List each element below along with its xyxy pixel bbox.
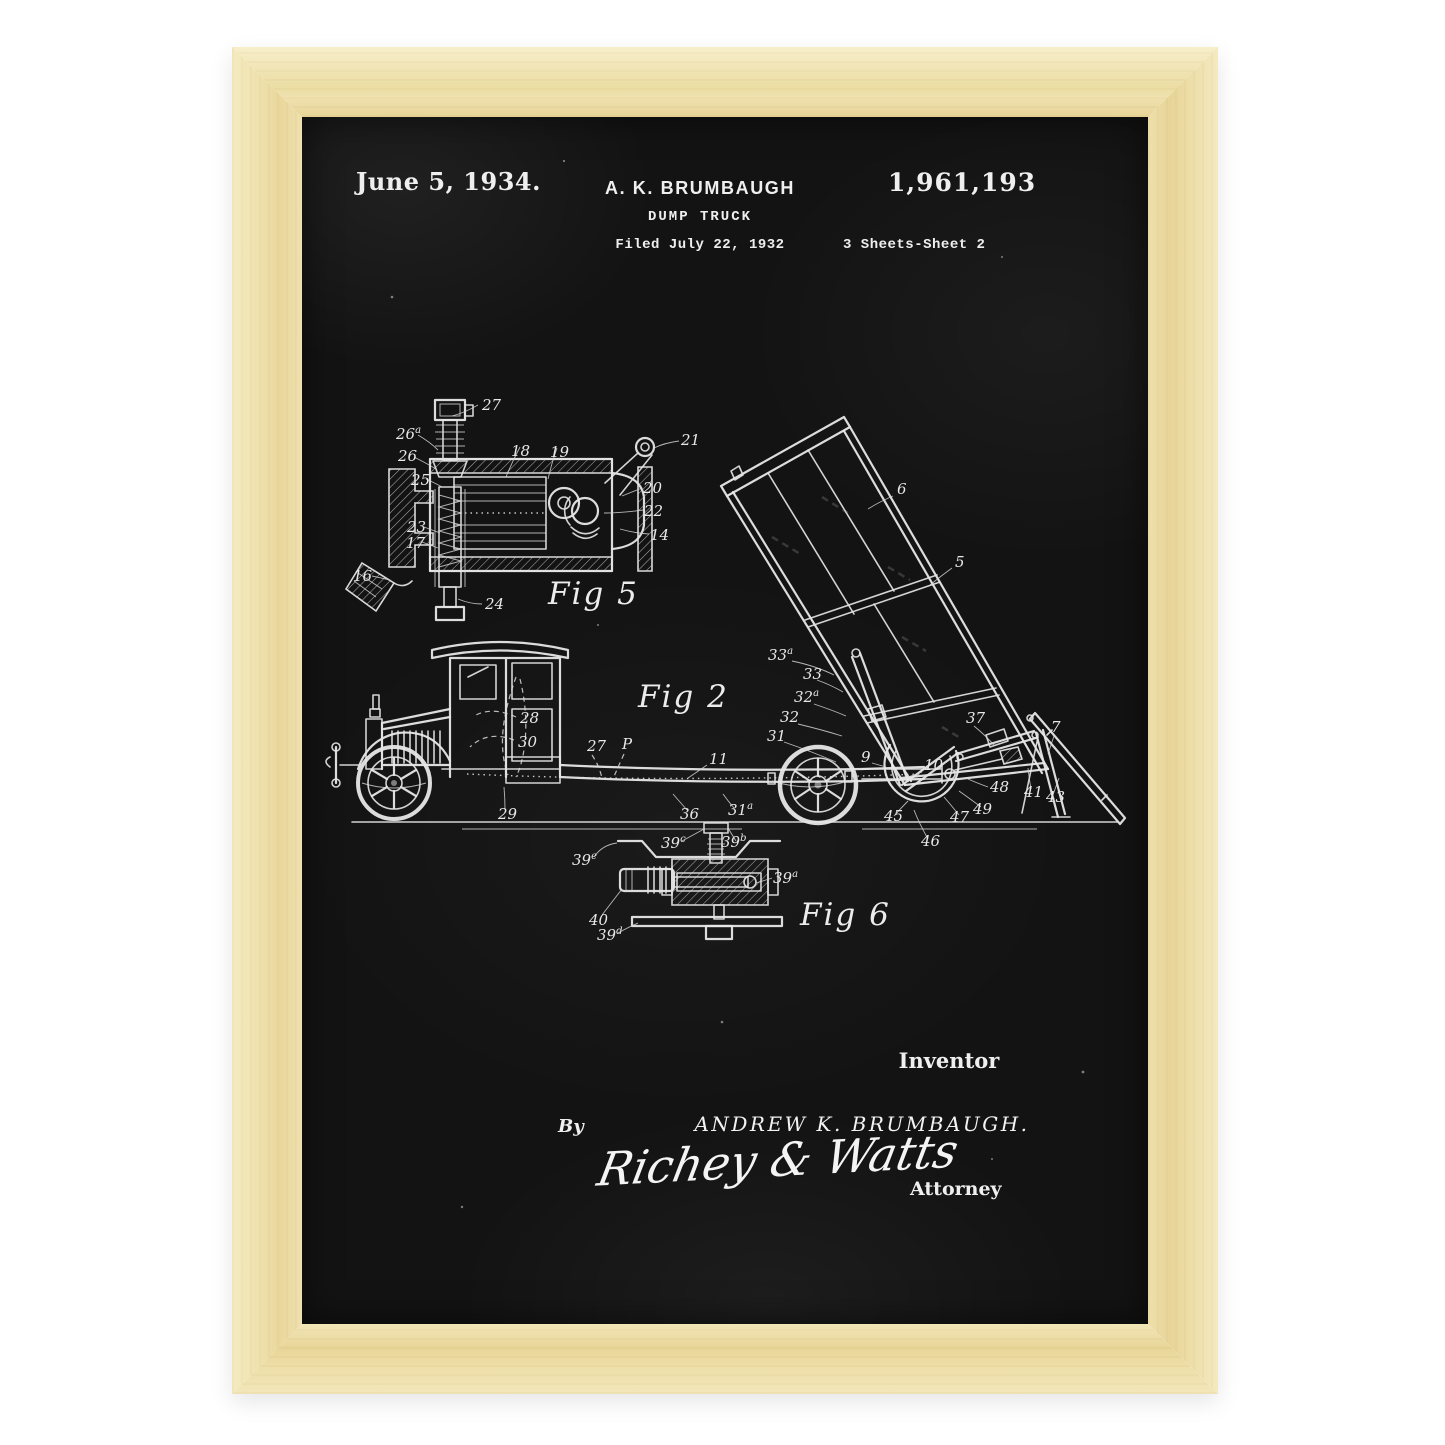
reference-numeral: 46: [920, 832, 941, 850]
inventor-label: Inventor: [894, 1048, 1004, 1073]
reference-numeral: 24: [484, 595, 504, 613]
reference-numeral: 48: [989, 778, 1009, 796]
reference-numeral: 32: [780, 708, 799, 726]
reference-numeral: 19: [550, 443, 570, 461]
reference-numeral: 10: [924, 756, 944, 774]
reference-numeral: 39e: [572, 851, 597, 869]
reference-numeral: 29: [497, 805, 518, 823]
reference-numeral: 17: [406, 534, 426, 552]
reference-numeral: 41: [1023, 783, 1043, 801]
reference-numeral: 30: [518, 733, 538, 751]
fig5-label: Fig 5: [547, 576, 639, 612]
reference-numeral: 5: [955, 553, 965, 571]
by-label: By: [558, 1116, 584, 1137]
reference-numeral: 49: [972, 800, 993, 818]
fig2-label: Fig 2: [637, 679, 729, 715]
reference-numeral: 20: [642, 479, 663, 497]
reference-numeral: 39d: [597, 926, 623, 944]
reference-numeral: 9: [861, 748, 871, 766]
reference-numeral: P: [621, 735, 633, 753]
reference-numeral: 31a: [728, 801, 753, 819]
reference-numeral: 27: [481, 396, 502, 414]
reference-numeral: 14: [650, 526, 669, 544]
frame-bottom: [232, 1324, 1218, 1394]
reference-numeral: 43: [1045, 788, 1065, 806]
reference-numeral: 32a: [794, 688, 819, 706]
reference-numeral: 22: [643, 502, 663, 520]
wood-frame: June 5, 1934. A. K. BRUMBAUGH 1,961,193 …: [232, 47, 1218, 1394]
reference-numeral: 45: [883, 807, 903, 825]
figure-5-valve-detail: Fig 52726a262523171624181921202214: [346, 396, 700, 620]
reference-numeral: 33: [803, 665, 822, 683]
reference-numeral: 28: [519, 709, 539, 727]
reference-numeral: 47: [949, 808, 970, 826]
reference-numeral: 7: [1051, 718, 1061, 736]
figure-6-bracket-detail: Fig 639e39c39b39a4039d: [572, 823, 891, 944]
frame-right: [1148, 47, 1218, 1394]
reference-numeral: 33a: [768, 646, 793, 664]
reference-numeral: 26: [397, 447, 418, 465]
fig6-label: Fig 6: [799, 897, 891, 933]
reference-numeral: 16: [353, 567, 373, 585]
framed-patent-poster: June 5, 1934. A. K. BRUMBAUGH 1,961,193 …: [0, 0, 1445, 1445]
reference-numeral: 11: [709, 750, 728, 768]
attorney-label: Attorney: [910, 1178, 1002, 1200]
frame-left: [232, 47, 302, 1394]
patent-poster: June 5, 1934. A. K. BRUMBAUGH 1,961,193 …: [302, 117, 1148, 1324]
frame-top: [232, 47, 1218, 117]
reference-numeral: 36: [680, 805, 700, 823]
figure-2-truck-side-view: Fig 2283027P11293631a33a3332a32316591037…: [326, 417, 1125, 850]
reference-numeral: 27: [586, 737, 607, 755]
reference-numeral: 39a: [773, 869, 798, 887]
reference-numeral: 31: [767, 727, 786, 745]
reference-numeral: 18: [511, 442, 530, 460]
reference-numeral: 6: [897, 480, 907, 498]
reference-numeral: 37: [966, 709, 986, 727]
reference-numeral: 26a: [395, 425, 421, 443]
reference-numeral: 39c: [661, 834, 686, 852]
reference-numeral: 21: [680, 431, 700, 449]
reference-numeral: 25: [410, 471, 430, 489]
